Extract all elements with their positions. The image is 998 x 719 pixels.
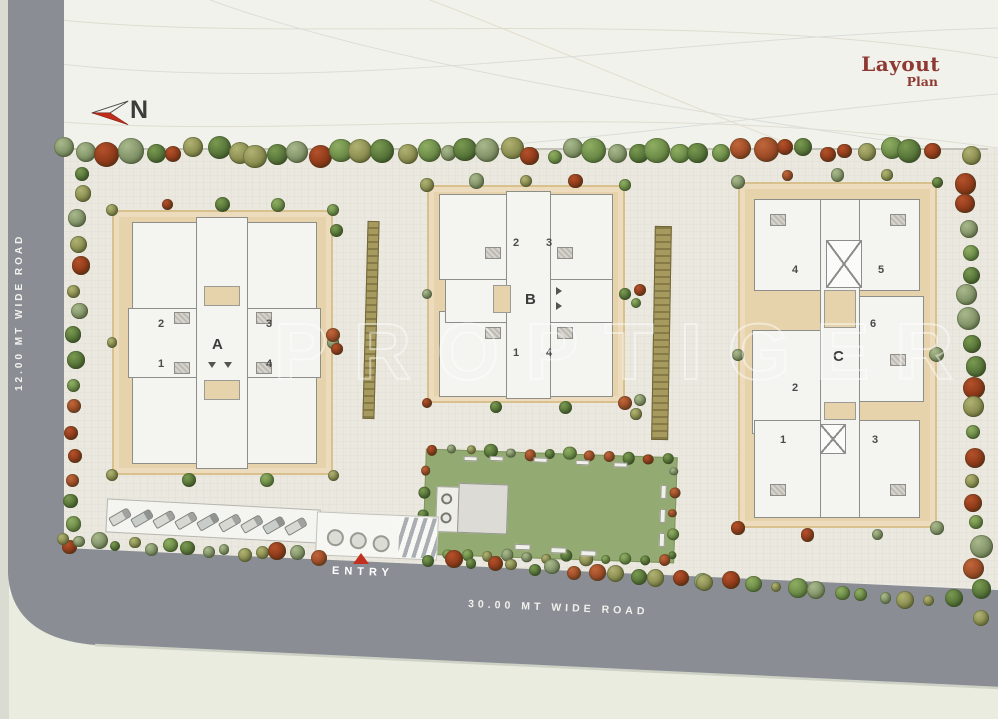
car-icon xyxy=(240,514,264,534)
garden xyxy=(422,449,678,564)
tree-icon xyxy=(668,551,676,559)
duct-hatch xyxy=(770,484,786,496)
bench xyxy=(534,457,548,462)
bench xyxy=(464,456,478,461)
lift-arrow-icon xyxy=(556,287,562,295)
tree-icon xyxy=(521,552,532,563)
car-icon xyxy=(284,517,308,537)
duct-hatch xyxy=(890,214,906,226)
unit-label: 2 xyxy=(513,237,519,249)
tree-icon xyxy=(501,549,514,562)
bench xyxy=(490,456,504,461)
building-label: A xyxy=(212,336,224,353)
tree-icon xyxy=(541,554,551,564)
bench xyxy=(575,460,589,465)
courtyard xyxy=(204,286,240,306)
tree-icon xyxy=(506,448,516,458)
duct-hatch xyxy=(557,247,573,259)
building-a-wing xyxy=(132,374,204,464)
left-margin-strip xyxy=(0,0,9,719)
unit-label: 2 xyxy=(158,318,164,330)
unit-label: 3 xyxy=(872,434,878,446)
bench xyxy=(659,509,665,523)
lift-shaft xyxy=(826,240,862,288)
car-icon xyxy=(130,508,154,528)
bench xyxy=(659,533,665,547)
unit-label: 5 xyxy=(878,264,884,276)
duct-hatch xyxy=(174,362,190,374)
bench xyxy=(660,485,666,499)
unit-label: 4 xyxy=(792,264,798,276)
duct-hatch xyxy=(890,484,906,496)
layout-plan-canvas: 2 3 1 4 A 2 3 1 4 B xyxy=(0,0,998,719)
tree-icon xyxy=(421,466,431,476)
road-label-left: 12.00 MT WIDE ROAD xyxy=(14,222,40,402)
unit-label: 1 xyxy=(158,358,164,370)
duct-hatch xyxy=(485,247,501,259)
entry-gate-plaza xyxy=(315,511,439,560)
unit-label: 1 xyxy=(780,434,786,446)
car-icon xyxy=(152,510,176,530)
lift-arrow-icon xyxy=(208,362,216,368)
car-icon xyxy=(174,511,198,531)
parking-strip xyxy=(105,498,320,543)
bench xyxy=(550,547,566,554)
tree-icon xyxy=(670,487,681,498)
bench xyxy=(613,462,627,467)
north-indicator: N xyxy=(90,96,210,132)
planter-circle xyxy=(349,532,367,550)
building-a-wing xyxy=(245,222,317,312)
unit-label: 4 xyxy=(266,358,272,370)
planter-circle xyxy=(372,535,390,553)
lift-shaft xyxy=(820,424,846,454)
bench xyxy=(514,544,530,551)
unit-label: 3 xyxy=(266,318,272,330)
tree-icon xyxy=(427,445,438,456)
planter-circle xyxy=(327,529,345,547)
tree-icon xyxy=(563,446,577,460)
title-word: Layout xyxy=(861,54,940,74)
car-icon xyxy=(262,515,286,535)
tree-icon xyxy=(640,555,650,565)
north-label: N xyxy=(130,96,148,125)
courtyard xyxy=(204,380,240,400)
watermark: PROPTIGER xyxy=(274,306,979,398)
car-icon xyxy=(108,507,132,527)
building-b-wing xyxy=(439,194,515,280)
building-a-wing xyxy=(132,222,204,312)
car-icon xyxy=(196,512,220,532)
page-title: Layout Plan xyxy=(861,54,940,89)
clubhouse xyxy=(457,483,509,535)
duct-hatch xyxy=(770,214,786,226)
entry-label: ENTRY xyxy=(332,565,394,579)
car-icon xyxy=(218,513,242,533)
entry-arrow-icon xyxy=(353,553,369,564)
tree-icon xyxy=(467,445,476,454)
courtyard xyxy=(824,402,856,420)
unit-label: 3 xyxy=(546,237,552,249)
zebra-crossing xyxy=(398,517,438,559)
duct-hatch xyxy=(174,312,190,324)
tree-icon xyxy=(462,549,474,561)
title-subword: Plan xyxy=(861,76,938,89)
north-arrow-icon xyxy=(90,96,130,128)
tree-icon xyxy=(663,453,674,464)
tree-icon xyxy=(601,555,610,564)
bench xyxy=(580,550,596,557)
lift-arrow-icon xyxy=(224,362,232,368)
